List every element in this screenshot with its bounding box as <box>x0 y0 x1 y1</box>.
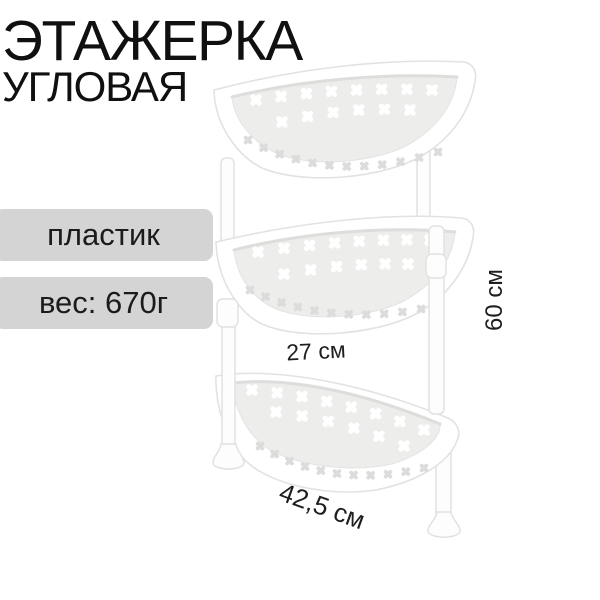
pole-left-upper <box>221 158 234 250</box>
pole-right-sleeve <box>426 254 446 278</box>
shelf-tier-top <box>214 61 476 178</box>
foot-right <box>428 512 460 537</box>
product-card: ЭТАЖЕРКА УГЛОВАЯ пластик вес: 670г 60 см… <box>0 0 600 600</box>
product-title-line2: УГЛОВАЯ <box>2 66 187 108</box>
spec-badge-material: пластик <box>0 209 213 261</box>
spec-badge-weight: вес: 670г <box>0 277 213 329</box>
product-title-line1: ЭТАЖЕРКА <box>2 12 302 70</box>
dimension-label-shelf-depth: 27 см <box>275 336 356 367</box>
pole-left-sleeve <box>217 299 238 327</box>
spec-badge-material-label: пластик <box>47 217 160 253</box>
dimension-label-height: 60 см <box>481 255 509 345</box>
spec-badge-weight-label: вес: 670г <box>39 285 168 321</box>
x-hole <box>433 147 443 157</box>
